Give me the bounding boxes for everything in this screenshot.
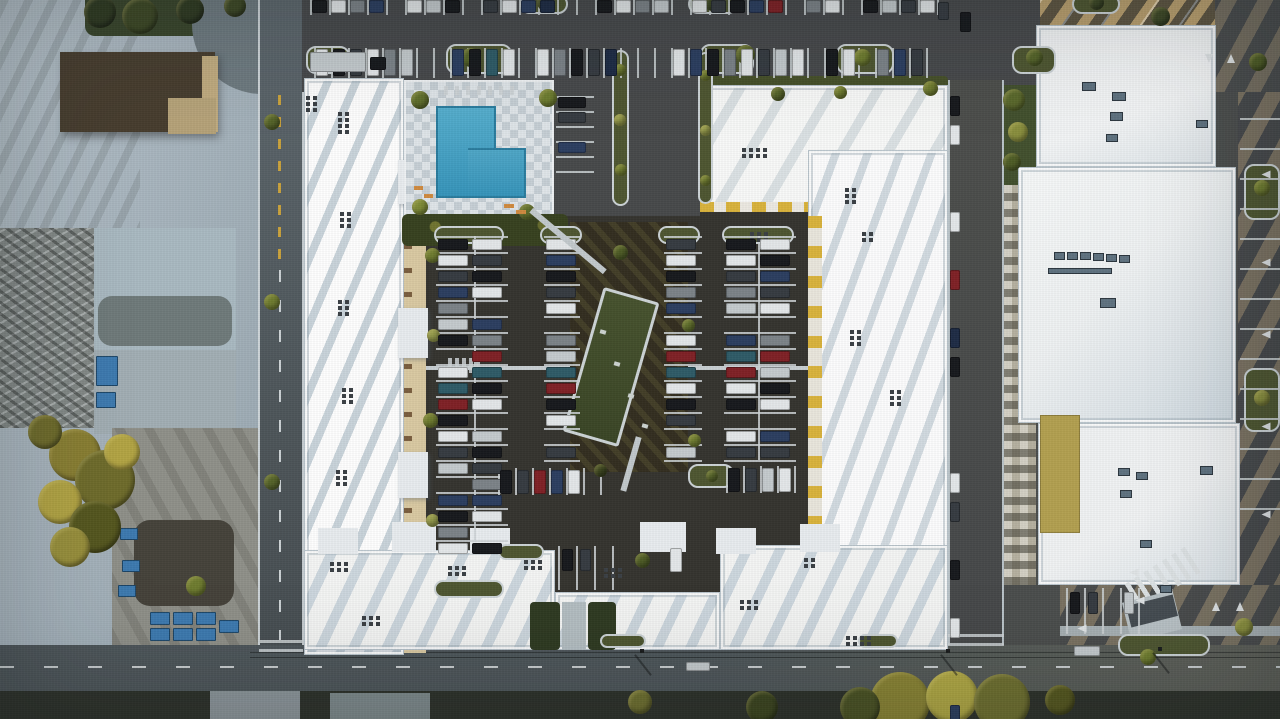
parking-stripe xyxy=(386,0,388,15)
roof-vent xyxy=(897,396,901,400)
parking-stripe xyxy=(1240,238,1280,240)
roof-vent xyxy=(524,560,528,564)
roof-vent xyxy=(362,622,366,626)
car xyxy=(760,239,790,250)
roof-vent xyxy=(343,470,347,474)
car xyxy=(806,0,821,13)
car xyxy=(768,0,783,13)
roof-vent xyxy=(538,560,542,564)
tree xyxy=(834,86,847,99)
car xyxy=(950,473,960,493)
warehouse-roof-stain xyxy=(98,296,232,346)
roof-vent xyxy=(342,388,346,392)
parking-stripe xyxy=(794,466,796,493)
car xyxy=(605,49,617,76)
road-west xyxy=(258,0,304,719)
roof-vent xyxy=(757,232,761,236)
parking-stripe xyxy=(544,252,580,254)
roof-vent xyxy=(313,96,317,100)
car xyxy=(666,255,696,266)
car xyxy=(775,49,787,76)
roof-vent xyxy=(337,568,341,572)
car xyxy=(726,431,756,442)
roof-vent xyxy=(455,572,459,576)
tree xyxy=(1026,49,1043,66)
parking-stripe xyxy=(499,86,503,95)
aerial-photo-scene xyxy=(0,0,1280,719)
car xyxy=(950,212,960,232)
car xyxy=(438,463,468,474)
dumpster xyxy=(150,628,170,641)
parking-stripe xyxy=(1240,298,1280,300)
parking-stripe xyxy=(1240,478,1280,480)
car xyxy=(1124,592,1134,614)
roof-vent xyxy=(313,108,317,112)
car xyxy=(666,287,696,298)
roof-vent xyxy=(369,616,373,620)
car xyxy=(546,255,576,266)
parking-stripe xyxy=(544,412,580,414)
hvac-unit xyxy=(1100,298,1116,308)
parking-stripe xyxy=(1240,358,1280,360)
car xyxy=(438,287,468,298)
car xyxy=(546,383,576,394)
hvac-unit xyxy=(1054,252,1065,260)
car xyxy=(438,303,468,314)
roof-vent xyxy=(852,200,856,204)
car xyxy=(950,96,960,116)
car xyxy=(546,271,576,282)
car xyxy=(438,319,468,330)
car xyxy=(666,335,696,346)
accent-detail xyxy=(946,649,950,653)
hvac-unit xyxy=(1136,472,1148,480)
parking-stripe xyxy=(1138,588,1140,634)
commercial-roof-north xyxy=(1036,25,1216,167)
roof-vent xyxy=(342,400,346,404)
car xyxy=(472,543,502,554)
parking-stripe xyxy=(436,460,508,462)
car xyxy=(521,0,536,13)
roof-vent xyxy=(869,232,873,236)
roof-vent xyxy=(338,124,342,128)
car xyxy=(438,431,468,442)
car xyxy=(960,12,971,32)
parking-stripe xyxy=(488,86,492,95)
hvac-unit xyxy=(1196,120,1208,128)
car xyxy=(728,468,740,492)
car xyxy=(551,470,563,494)
roof-vent xyxy=(343,476,347,480)
parking-stripe xyxy=(416,48,418,78)
car xyxy=(562,549,573,571)
car xyxy=(950,705,960,719)
tree xyxy=(1003,89,1025,111)
parking-stripe xyxy=(724,332,796,334)
parking-stripe xyxy=(785,0,787,15)
car xyxy=(779,468,791,492)
tree xyxy=(594,464,607,477)
tree xyxy=(1249,53,1267,71)
car xyxy=(445,0,460,13)
roof-vent xyxy=(764,232,768,236)
car xyxy=(950,560,960,580)
tree xyxy=(1008,122,1028,142)
concrete-patch-below-road-2 xyxy=(330,693,430,719)
parking-stripe xyxy=(544,284,580,286)
dumpster xyxy=(120,528,138,540)
roof-vent xyxy=(749,148,753,152)
parking-stripe xyxy=(544,332,580,334)
parking-stripe xyxy=(1240,148,1280,150)
car xyxy=(438,367,468,378)
parking-stripe xyxy=(724,412,796,414)
car xyxy=(438,447,468,458)
roof-vent xyxy=(845,194,849,198)
tree xyxy=(104,434,140,470)
lane-arrow xyxy=(1262,171,1271,179)
car xyxy=(760,447,790,458)
roof-vent xyxy=(338,130,342,134)
parking-stripe xyxy=(664,428,702,430)
roof-vent xyxy=(846,636,850,640)
roof-vent xyxy=(345,112,349,116)
car xyxy=(762,468,774,492)
parking-stripe xyxy=(724,444,796,446)
car xyxy=(438,255,468,266)
roof-vent xyxy=(747,606,751,610)
car xyxy=(558,142,586,153)
car xyxy=(580,549,591,571)
roof-vent xyxy=(338,312,342,316)
parking-stripe xyxy=(462,0,464,15)
parking-stripe xyxy=(576,0,578,15)
car xyxy=(438,527,468,538)
parking-stripe xyxy=(926,48,928,78)
car xyxy=(558,112,586,123)
car xyxy=(760,367,790,378)
car xyxy=(571,49,583,76)
parking-stripe xyxy=(1120,588,1122,634)
roof-vent xyxy=(330,568,334,572)
parking-stripe xyxy=(724,380,796,382)
parking-stripe xyxy=(544,348,580,350)
car xyxy=(438,383,468,394)
roof-vent xyxy=(852,194,856,198)
roof-vent xyxy=(862,232,866,236)
tree xyxy=(1089,0,1104,10)
hvac-unit xyxy=(1110,112,1123,121)
roof-vent xyxy=(742,154,746,158)
parking-stripe xyxy=(1240,328,1280,330)
car xyxy=(666,415,696,426)
parking-stripe xyxy=(436,396,508,398)
yellow-balcony-strip-north xyxy=(700,202,812,212)
hvac-unit xyxy=(1080,252,1091,260)
car xyxy=(760,303,790,314)
parking-stripe xyxy=(1240,118,1280,120)
tree xyxy=(746,691,778,719)
parking-stripe xyxy=(544,396,580,398)
car xyxy=(670,548,682,572)
roof-vent xyxy=(330,562,334,566)
roof-vent xyxy=(344,568,348,572)
roof-vent xyxy=(853,636,857,640)
dumpster xyxy=(118,585,136,597)
tree xyxy=(613,245,628,260)
apartment-west-wing-bump-3 xyxy=(398,452,428,498)
roof-vent xyxy=(345,300,349,304)
dumpster xyxy=(96,392,116,408)
commercial-roof-center xyxy=(1018,167,1236,423)
parking-stripe xyxy=(724,284,796,286)
parking-stripe xyxy=(1240,508,1280,510)
car xyxy=(483,0,498,13)
roof-vent xyxy=(763,154,767,158)
car xyxy=(666,239,696,250)
parking-stripe xyxy=(436,540,508,542)
car xyxy=(472,367,502,378)
car xyxy=(502,0,517,13)
parking-stripe xyxy=(436,348,508,350)
car xyxy=(597,0,612,13)
roof-vent xyxy=(867,636,871,640)
roof-vent xyxy=(857,336,861,340)
car xyxy=(726,367,756,378)
roof-vent xyxy=(740,606,744,610)
roof-vent xyxy=(344,562,348,566)
roof-vent xyxy=(763,148,767,152)
dumpster xyxy=(196,628,216,641)
roof-vent xyxy=(857,342,861,346)
tree xyxy=(635,553,650,568)
tree xyxy=(264,474,280,490)
lane-arrow xyxy=(1205,54,1213,63)
car xyxy=(517,470,529,494)
parking-stripe xyxy=(259,649,303,652)
car xyxy=(438,239,468,250)
accent-detail xyxy=(424,194,433,198)
parking-stripe xyxy=(664,396,702,398)
roof-vent xyxy=(345,118,349,122)
parking-stripe xyxy=(664,316,702,318)
dumpster xyxy=(122,560,140,572)
concrete-patch-below-road-1 xyxy=(210,691,300,719)
car xyxy=(666,383,696,394)
landscaped-curb-island xyxy=(1118,634,1210,656)
car xyxy=(877,49,889,76)
car xyxy=(554,49,566,76)
south-wing-gable-bump-5 xyxy=(716,528,756,554)
hvac-unit xyxy=(1118,468,1130,476)
apartment-south-wing-roof-west xyxy=(304,550,555,650)
tree xyxy=(923,81,938,96)
lane-arrow xyxy=(1130,569,1139,577)
car xyxy=(666,303,696,314)
lane-arrow xyxy=(1262,331,1271,339)
roof-vent xyxy=(750,232,754,236)
parking-stripe xyxy=(544,380,580,382)
parking-stripe xyxy=(724,348,796,350)
car xyxy=(407,0,422,13)
car xyxy=(911,49,923,76)
roof-vent xyxy=(846,642,850,646)
parking-stripe xyxy=(664,284,702,286)
parking-stripe xyxy=(558,546,560,590)
car xyxy=(472,511,502,522)
tree xyxy=(706,470,718,482)
car xyxy=(666,367,696,378)
tree xyxy=(614,114,626,126)
car xyxy=(472,463,502,474)
tree xyxy=(50,527,90,567)
car xyxy=(843,49,855,76)
commercial-olive-roof-section xyxy=(1040,415,1080,533)
parking-stripe xyxy=(664,412,702,414)
parking-stripe xyxy=(594,546,596,590)
parking-stripe xyxy=(758,236,760,460)
apartment-west-wing-bump-2 xyxy=(398,308,428,358)
car xyxy=(726,271,756,282)
parking-stripe xyxy=(637,48,639,78)
parking-stripe xyxy=(436,428,508,430)
parking-stripe xyxy=(436,284,508,286)
car xyxy=(472,271,502,282)
industrial-annex-tan-roof xyxy=(168,98,216,134)
roof-vent xyxy=(306,102,310,106)
car xyxy=(950,125,960,145)
tree xyxy=(628,690,652,714)
car xyxy=(540,0,555,13)
car xyxy=(1070,592,1080,614)
parking-stripe xyxy=(724,460,796,462)
car xyxy=(472,479,502,490)
parking-stripe xyxy=(583,468,585,495)
car xyxy=(438,271,468,282)
parking-stripe xyxy=(664,236,702,238)
roof-vent xyxy=(313,102,317,106)
parking-stripe xyxy=(518,48,520,78)
roof-vent xyxy=(448,566,452,570)
car xyxy=(686,662,710,671)
tree xyxy=(615,164,627,176)
roof-vent xyxy=(747,600,751,604)
car xyxy=(882,0,897,13)
parking-stripe xyxy=(436,524,508,526)
car xyxy=(950,328,960,348)
tree xyxy=(1254,180,1270,196)
roof-vent xyxy=(604,574,608,578)
parking-stripe xyxy=(544,428,580,430)
car xyxy=(438,399,468,410)
car xyxy=(760,351,790,362)
tree xyxy=(854,49,871,66)
parking-stripe xyxy=(724,316,796,318)
car xyxy=(331,0,346,13)
parking-stripe xyxy=(556,171,594,173)
roof-vent xyxy=(362,616,366,620)
car xyxy=(666,351,696,362)
roof-vent xyxy=(345,312,349,316)
roof-vent xyxy=(347,218,351,222)
lane-arrow xyxy=(1262,423,1271,431)
roof-vent xyxy=(455,566,459,570)
car xyxy=(666,399,696,410)
roof-vent xyxy=(524,566,528,570)
car xyxy=(745,468,757,492)
parking-stripe xyxy=(671,0,673,15)
road-west-white-dashes xyxy=(279,270,281,640)
car xyxy=(546,367,576,378)
car xyxy=(758,49,770,76)
apartment-south-wing-roof-east xyxy=(720,545,948,650)
car xyxy=(452,49,464,76)
roof-vent xyxy=(448,572,452,576)
roof-vent xyxy=(604,568,608,572)
south-entrance-hedge-left xyxy=(530,602,560,650)
car xyxy=(438,335,468,346)
car xyxy=(920,0,935,13)
car xyxy=(690,49,702,76)
parking-stripe xyxy=(544,268,580,270)
parking-stripe xyxy=(436,252,508,254)
tree xyxy=(1151,7,1170,26)
car xyxy=(894,49,906,76)
roof-vent xyxy=(867,642,871,646)
roof-vent xyxy=(852,188,856,192)
roof-vent xyxy=(337,562,341,566)
roof-vent xyxy=(338,118,342,122)
car xyxy=(546,303,576,314)
lane-arrow xyxy=(1227,54,1235,63)
tree xyxy=(840,687,880,719)
roof-vent xyxy=(531,560,535,564)
roof-vent xyxy=(342,394,346,398)
parking-stripe xyxy=(436,508,508,510)
hvac-unit xyxy=(1112,92,1126,101)
car xyxy=(950,502,960,522)
tree xyxy=(186,576,206,596)
roof-vent xyxy=(336,482,340,486)
car xyxy=(310,52,366,72)
car xyxy=(901,0,916,13)
roof-vent xyxy=(349,394,353,398)
roof-vent xyxy=(756,148,760,152)
parking-stripe xyxy=(436,300,508,302)
dumpster xyxy=(173,612,193,625)
tree xyxy=(539,89,557,107)
swimming-pool-arm xyxy=(468,148,526,198)
tree xyxy=(700,175,711,186)
car xyxy=(546,335,576,346)
south-entrance-path xyxy=(562,602,586,650)
lane-arrow xyxy=(1262,259,1271,267)
car xyxy=(438,511,468,522)
car xyxy=(568,470,580,494)
parking-stripe xyxy=(654,48,656,78)
roof-vent xyxy=(340,224,344,228)
parking-stripe xyxy=(664,252,702,254)
accent-detail xyxy=(1158,647,1162,651)
roof-vent xyxy=(347,212,351,216)
parking-stripe xyxy=(436,332,508,334)
parking-stripe xyxy=(842,0,844,15)
car xyxy=(760,271,790,282)
tree xyxy=(682,319,695,332)
hvac-unit xyxy=(1048,268,1112,274)
accent-detail xyxy=(516,210,526,214)
accent-detail xyxy=(414,186,423,190)
